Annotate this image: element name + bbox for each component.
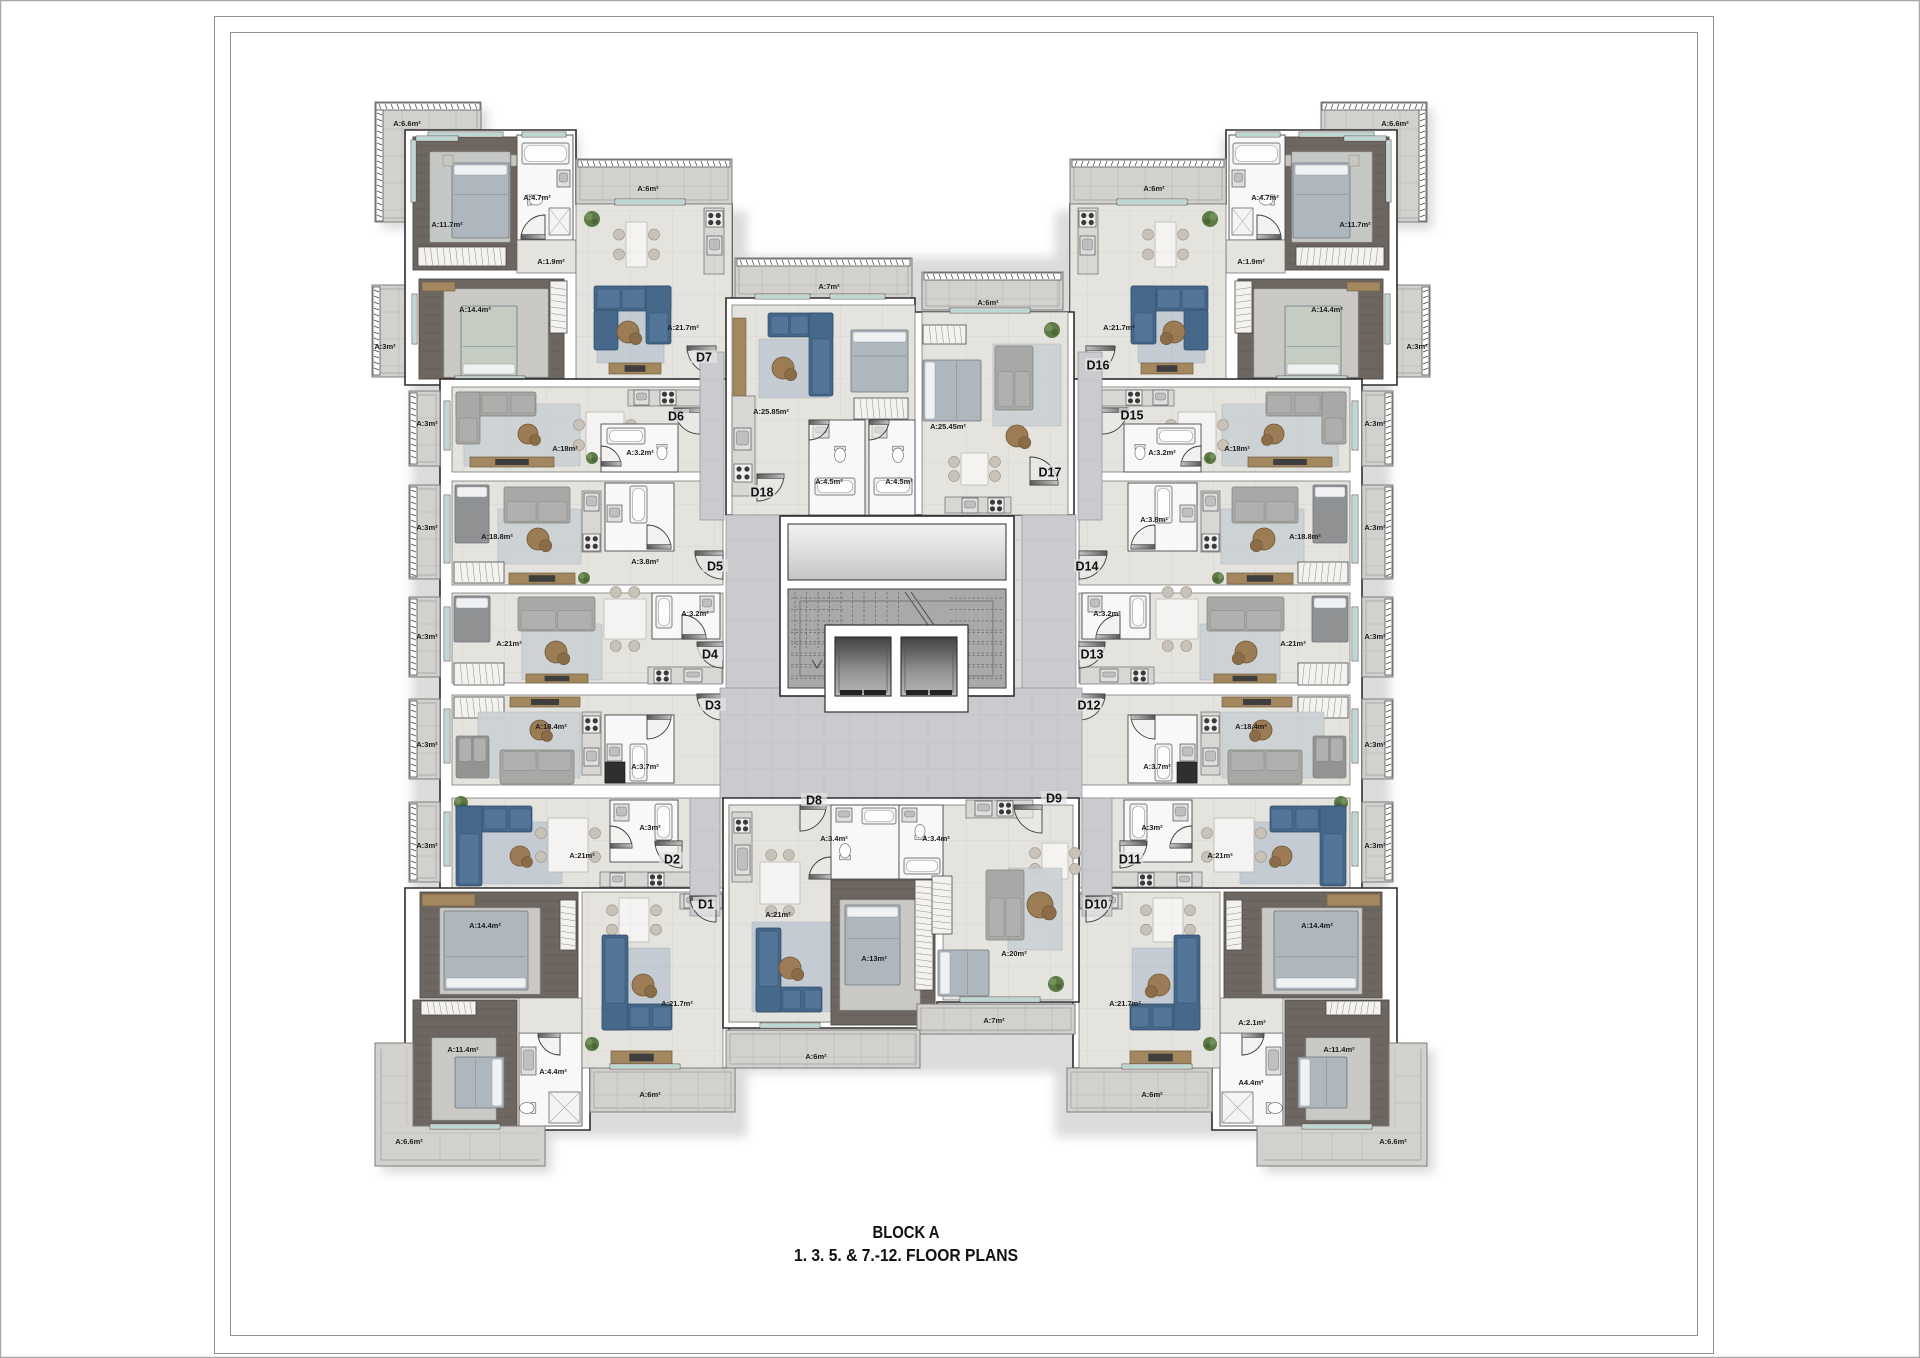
svg-text:D2: D2: [664, 853, 680, 867]
svg-text:A:18m²: A:18m²: [1224, 444, 1250, 453]
svg-text:A:21.7m²: A:21.7m²: [661, 999, 693, 1008]
svg-text:A:3.8m²: A:3.8m²: [1140, 515, 1168, 524]
svg-text:A:3.2m²: A:3.2m²: [1148, 448, 1176, 457]
svg-text:A:21.7m²: A:21.7m²: [1109, 999, 1141, 1008]
svg-text:A:3m²: A:3m²: [416, 523, 438, 532]
svg-text:A:18.4m²: A:18.4m²: [1235, 722, 1267, 731]
svg-text:A:3.4m²: A:3.4m²: [922, 834, 950, 843]
svg-text:A:6m²: A:6m²: [637, 184, 659, 193]
svg-text:A:21m²: A:21m²: [1207, 851, 1233, 860]
svg-text:A:6.6m²: A:6.6m²: [395, 1137, 423, 1146]
svg-text:D18: D18: [751, 486, 774, 500]
svg-text:A:3.8m²: A:3.8m²: [631, 557, 659, 566]
svg-text:A:6.6m²: A:6.6m²: [1379, 1137, 1407, 1146]
svg-text:A:18.4m²: A:18.4m²: [535, 722, 567, 731]
svg-text:A:21.7m²: A:21.7m²: [1103, 323, 1135, 332]
svg-text:A:6.6m²: A:6.6m²: [393, 119, 421, 128]
svg-text:A:4.5m²: A:4.5m²: [815, 477, 843, 486]
svg-text:A:18m²: A:18m²: [552, 444, 578, 453]
svg-text:A:18.8m²: A:18.8m²: [1289, 532, 1321, 541]
svg-text:A:4.7m²: A:4.7m²: [1251, 193, 1279, 202]
svg-text:D8: D8: [806, 794, 822, 808]
svg-text:A:18.8m²: A:18.8m²: [481, 532, 513, 541]
svg-text:A:6m²: A:6m²: [1143, 184, 1165, 193]
svg-text:A:3m²: A:3m²: [374, 342, 396, 351]
svg-text:A:1.9m²: A:1.9m²: [537, 257, 565, 266]
svg-text:D11: D11: [1119, 853, 1141, 867]
svg-text:A:3m²: A:3m²: [1364, 632, 1386, 641]
svg-text:A:3.4m²: A:3.4m²: [820, 834, 848, 843]
svg-text:D9: D9: [1046, 792, 1062, 806]
svg-text:A:3m²: A:3m²: [416, 419, 438, 428]
svg-text:A:3m²: A:3m²: [1406, 342, 1428, 351]
svg-text:A:4.4m²: A:4.4m²: [539, 1067, 567, 1076]
svg-text:D12: D12: [1078, 699, 1101, 713]
svg-text:A:11.7m²: A:11.7m²: [1339, 220, 1371, 229]
svg-text:A:3m²: A:3m²: [416, 632, 438, 641]
svg-text:A:21m²: A:21m²: [765, 910, 791, 919]
svg-text:D10: D10: [1085, 898, 1108, 912]
svg-text:BLOCK A: BLOCK A: [873, 1222, 940, 1242]
svg-text:A:2.1m²: A:2.1m²: [1238, 1018, 1266, 1027]
svg-text:D14: D14: [1076, 560, 1099, 574]
svg-text:A:21.7m²: A:21.7m²: [667, 323, 699, 332]
svg-text:A:14.4m²: A:14.4m²: [1311, 305, 1343, 314]
svg-text:D1: D1: [698, 898, 714, 912]
svg-text:A:3m²: A:3m²: [416, 841, 438, 850]
svg-text:D5: D5: [707, 560, 723, 574]
svg-text:A:6m²: A:6m²: [805, 1052, 827, 1061]
svg-text:A:1.9m²: A:1.9m²: [1237, 257, 1265, 266]
svg-text:A:4.5m²: A:4.5m²: [885, 477, 913, 486]
svg-text:A:21m²: A:21m²: [569, 851, 595, 860]
svg-text:A:3m²: A:3m²: [1141, 823, 1163, 832]
svg-text:A:3.2m²: A:3.2m²: [681, 609, 709, 618]
svg-text:A:25.85m²: A:25.85m²: [753, 407, 789, 416]
svg-text:A:3m²: A:3m²: [1364, 523, 1386, 532]
svg-text:A:25.45m²: A:25.45m²: [930, 422, 966, 431]
svg-text:D4: D4: [702, 648, 718, 662]
svg-text:D6: D6: [668, 410, 684, 424]
svg-text:A:7m²: A:7m²: [818, 282, 840, 291]
svg-text:A:6.6m²: A:6.6m²: [1381, 119, 1409, 128]
svg-text:1. 3. 5. & 7.-12. FLOOR PLANS: 1. 3. 5. & 7.-12. FLOOR PLANS: [794, 1245, 1018, 1265]
svg-text:A:3m²: A:3m²: [1364, 841, 1386, 850]
svg-text:A:14.4m²: A:14.4m²: [459, 305, 491, 314]
svg-text:A:3m²: A:3m²: [1364, 419, 1386, 428]
svg-text:A:20m²: A:20m²: [1001, 949, 1027, 958]
svg-text:A:3m²: A:3m²: [1364, 740, 1386, 749]
svg-text:A:3.2m²: A:3.2m²: [1093, 609, 1121, 618]
svg-text:A:3.2m²: A:3.2m²: [626, 448, 654, 457]
svg-text:A:3m²: A:3m²: [416, 740, 438, 749]
svg-text:A:14.4m²: A:14.4m²: [1301, 921, 1333, 930]
svg-text:A:7m²: A:7m²: [983, 1016, 1005, 1025]
svg-text:D3: D3: [705, 699, 721, 713]
svg-text:A:21m²: A:21m²: [1280, 639, 1306, 648]
svg-text:A:13m²: A:13m²: [861, 954, 887, 963]
svg-text:A:6m²: A:6m²: [977, 298, 999, 307]
svg-text:D13: D13: [1081, 648, 1104, 662]
svg-text:A:6m²: A:6m²: [639, 1090, 661, 1099]
svg-text:A:3.7m²: A:3.7m²: [1143, 762, 1171, 771]
svg-text:A:11.7m²: A:11.7m²: [431, 220, 463, 229]
svg-text:D17: D17: [1039, 466, 1062, 480]
svg-text:A:11.4m²: A:11.4m²: [447, 1045, 479, 1054]
svg-text:A:3m²: A:3m²: [639, 823, 661, 832]
svg-text:D16: D16: [1087, 359, 1110, 373]
svg-text:A:6m²: A:6m²: [1141, 1090, 1163, 1099]
svg-text:A:14.4m²: A:14.4m²: [469, 921, 501, 930]
svg-text:A:11.4m²: A:11.4m²: [1323, 1045, 1355, 1054]
svg-text:D15: D15: [1121, 409, 1144, 423]
svg-text:A4.4m²: A4.4m²: [1238, 1078, 1264, 1087]
svg-text:D7: D7: [696, 351, 712, 365]
svg-text:A:3.7m²: A:3.7m²: [631, 762, 659, 771]
svg-text:A:4.7m²: A:4.7m²: [523, 193, 551, 202]
svg-text:A:21m²: A:21m²: [496, 639, 522, 648]
